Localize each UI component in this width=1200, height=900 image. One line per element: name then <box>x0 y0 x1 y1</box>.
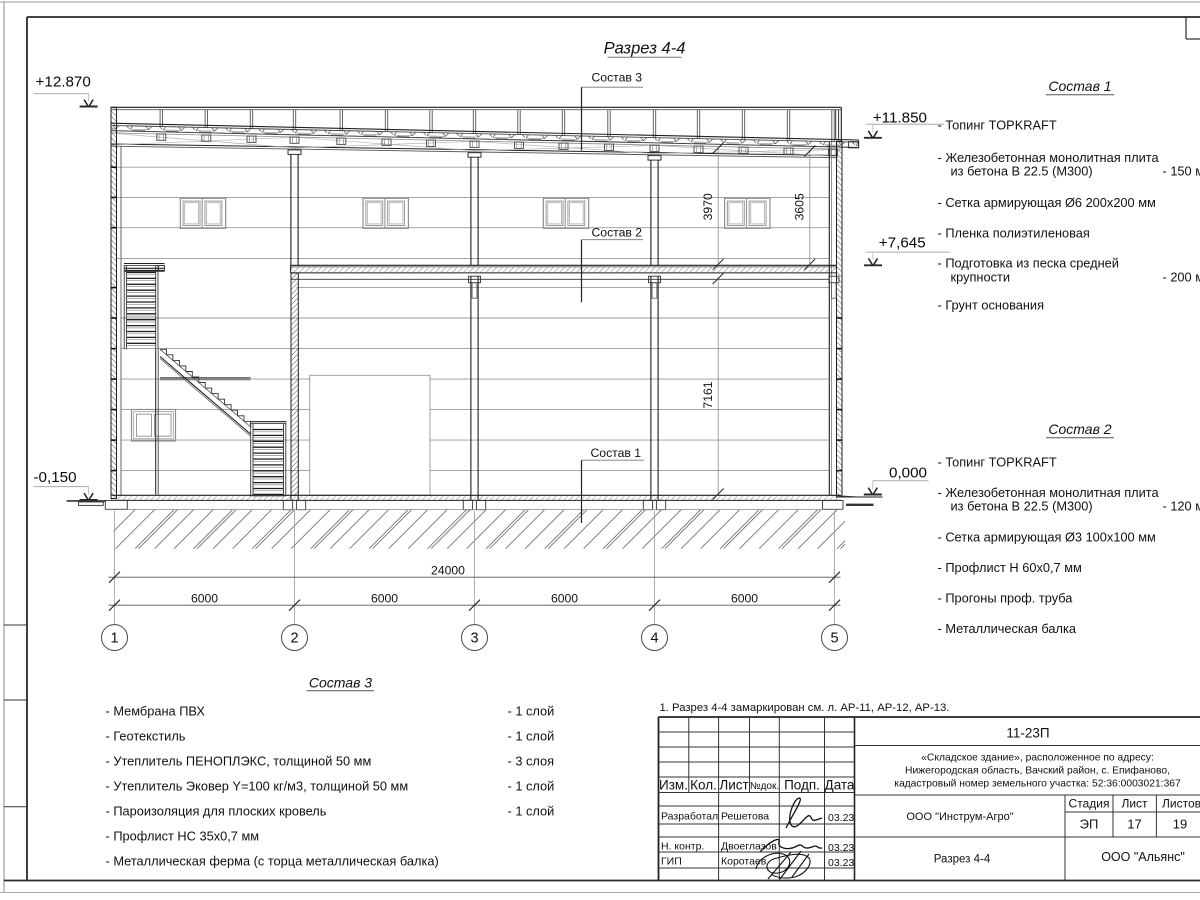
svg-text:- 1 слой: - 1 слой <box>508 729 555 744</box>
svg-text:из бетона В 22.5 (М300): из бетона В 22.5 (М300) <box>951 498 1093 513</box>
svg-text:- 150 мм: - 150 мм <box>1163 163 1200 178</box>
svg-text:Изм.: Изм. <box>659 778 688 793</box>
svg-text:+12.870: +12.870 <box>36 74 91 91</box>
svg-text:- Металлическая балка: - Металлическая балка <box>938 621 1077 636</box>
svg-text:- 1 слой: - 1 слой <box>508 704 555 719</box>
svg-text:24000: 24000 <box>431 564 465 578</box>
svg-text:Листов: Листов <box>1162 797 1200 811</box>
svg-text:Кол.: Кол. <box>690 778 717 793</box>
svg-text:- Пароизоляция для плоских кро: - Пароизоляция для плоских кровель <box>106 804 327 819</box>
svg-text:+11.850: +11.850 <box>873 109 927 126</box>
svg-text:11-23П: 11-23П <box>1006 726 1049 741</box>
svg-text:№док.: №док. <box>750 781 779 792</box>
svg-text:- Геотекстиль: - Геотекстиль <box>106 729 186 744</box>
svg-text:6000: 6000 <box>371 592 398 606</box>
svg-text:7161: 7161 <box>701 381 715 408</box>
svg-text:- Топинг TOPKRAFT: - Топинг TOPKRAFT <box>938 117 1057 132</box>
svg-text:6000: 6000 <box>551 592 578 606</box>
svg-text:- Утеплитель Эковер Y=100 кг/м: - Утеплитель Эковер Y=100 кг/м3, толщино… <box>106 779 409 794</box>
svg-text:- Грунт основания: - Грунт основания <box>938 297 1045 312</box>
svg-text:19: 19 <box>1173 817 1187 832</box>
svg-text:-0,150: -0,150 <box>34 469 77 486</box>
svg-text:Подп.: Подп. <box>784 778 820 793</box>
svg-text:- Пленка полиэтиленовая: - Пленка полиэтиленовая <box>938 225 1090 240</box>
svg-text:Состав 3: Состав 3 <box>309 674 372 690</box>
svg-text:ГИП: ГИП <box>661 856 682 868</box>
svg-text:+7,645: +7,645 <box>879 234 926 251</box>
svg-text:- 1 слой: - 1 слой <box>508 804 555 819</box>
svg-text:Н. контр.: Н. контр. <box>661 841 704 853</box>
svg-text:Двоеглазов: Двоеглазов <box>721 841 777 853</box>
svg-text:кадастровый номер земельного у: кадастровый номер земельного участка: 52… <box>894 779 1181 790</box>
svg-text:- Подготовка из песка средней: - Подготовка из песка средней <box>938 256 1119 271</box>
svg-text:- Прогоны проф. труба: - Прогоны проф. труба <box>938 591 1074 606</box>
svg-text:03.23: 03.23 <box>828 842 854 854</box>
svg-text:Нижегородская область, Вачский: Нижегородская область, Вачский район, с.… <box>905 765 1170 777</box>
svg-text:Состав 1: Состав 1 <box>1048 78 1111 94</box>
svg-text:ООО "Альянс": ООО "Альянс" <box>1101 850 1185 864</box>
svg-text:- 120 мм: - 120 мм <box>1163 498 1200 513</box>
svg-text:5: 5 <box>830 631 838 647</box>
svg-text:Лист: Лист <box>1121 797 1148 811</box>
svg-text:6000: 6000 <box>191 592 218 606</box>
svg-text:Разработал: Разработал <box>661 811 718 823</box>
svg-text:- Металлическая ферма (с торца: - Металлическая ферма (с торца металличе… <box>106 854 439 869</box>
svg-text:- Профлист Н 60х0,7 мм: - Профлист Н 60х0,7 мм <box>938 560 1082 575</box>
svg-text:ООО "Инструм-Агро": ООО "Инструм-Агро" <box>906 811 1013 823</box>
svg-text:03.23: 03.23 <box>828 812 854 824</box>
svg-text:- Топинг TOPKRAFT: - Топинг TOPKRAFT <box>938 454 1057 469</box>
svg-text:- Сетка армирующая Ø3 100х100: - Сетка армирующая Ø3 100х100 мм <box>938 529 1156 544</box>
svg-text:3605: 3605 <box>792 193 806 220</box>
svg-text:3: 3 <box>470 631 478 647</box>
svg-text:Решетова: Решетова <box>721 811 769 823</box>
svg-text:Разрез 4-4: Разрез 4-4 <box>604 40 686 58</box>
svg-text:ЭП: ЭП <box>1080 817 1099 832</box>
svg-text:4: 4 <box>650 631 658 647</box>
svg-text:Состав 1: Состав 1 <box>591 446 642 460</box>
svg-text:крупности: крупности <box>951 269 1011 284</box>
svg-text:3970: 3970 <box>701 193 715 220</box>
svg-text:Разрез 4-4: Разрез 4-4 <box>934 854 991 866</box>
svg-text:- Профлист НС 35х0,7 мм: - Профлист НС 35х0,7 мм <box>106 829 260 844</box>
svg-text:Состав 2: Состав 2 <box>1048 421 1111 437</box>
svg-text:«Складское здание», расположен: «Складское здание», расположенное по адр… <box>921 753 1154 764</box>
svg-text:Дата: Дата <box>825 778 855 793</box>
svg-text:2: 2 <box>290 631 298 647</box>
svg-text:1: 1 <box>110 631 118 647</box>
svg-text:1. Разрез 4-4 замаркирован см.: 1. Разрез 4-4 замаркирован см. л. АР-11,… <box>660 702 950 714</box>
svg-text:Состав 3: Состав 3 <box>592 70 643 84</box>
svg-text:Состав 2: Состав 2 <box>592 225 643 239</box>
svg-text:6000: 6000 <box>731 592 758 606</box>
svg-text:- 3 слоя: - 3 слоя <box>508 754 555 769</box>
svg-text:из бетона В 22.5 (М300): из бетона В 22.5 (М300) <box>951 163 1093 178</box>
svg-text:17: 17 <box>1127 817 1141 832</box>
svg-text:03.23: 03.23 <box>828 857 854 869</box>
svg-text:Лист: Лист <box>719 778 748 793</box>
svg-text:Стадия: Стадия <box>1069 797 1110 811</box>
svg-text:- Мембрана ПВХ: - Мембрана ПВХ <box>106 704 206 719</box>
svg-text:- Сетка армирующая Ø6 200х200: - Сетка армирующая Ø6 200х200 мм <box>938 195 1156 210</box>
svg-text:0,000: 0,000 <box>889 465 927 482</box>
svg-text:- Утеплитель ПЕНОПЛЭКС, толщин: - Утеплитель ПЕНОПЛЭКС, толщиной 50 мм <box>106 754 372 769</box>
svg-text:- 1 слой: - 1 слой <box>508 779 555 794</box>
svg-text:- 200 мм: - 200 мм <box>1163 269 1200 284</box>
